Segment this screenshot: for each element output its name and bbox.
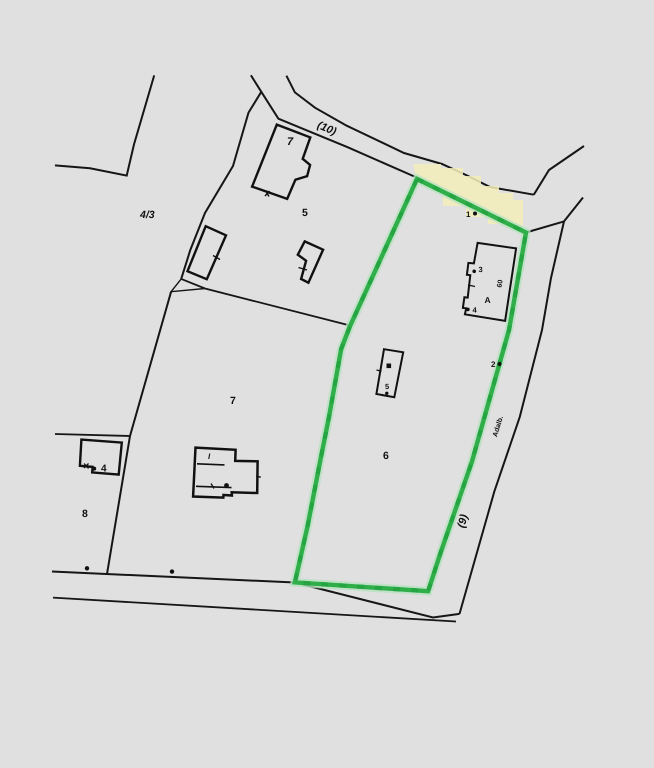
svg-text:8: 8 (82, 508, 88, 520)
svg-text:2: 2 (491, 360, 496, 369)
svg-text:5: 5 (385, 382, 389, 391)
svg-text:6: 6 (383, 450, 389, 462)
svg-text:A: A (485, 295, 491, 305)
svg-text:1: 1 (466, 210, 471, 219)
svg-text:3: 3 (479, 265, 483, 274)
svg-text:60: 60 (496, 279, 504, 288)
svg-text:7: 7 (230, 395, 236, 407)
svg-text:5: 5 (302, 207, 308, 219)
svg-text:4/3: 4/3 (139, 209, 155, 221)
svg-text:7: 7 (287, 136, 294, 148)
svg-text:4: 4 (101, 464, 107, 475)
